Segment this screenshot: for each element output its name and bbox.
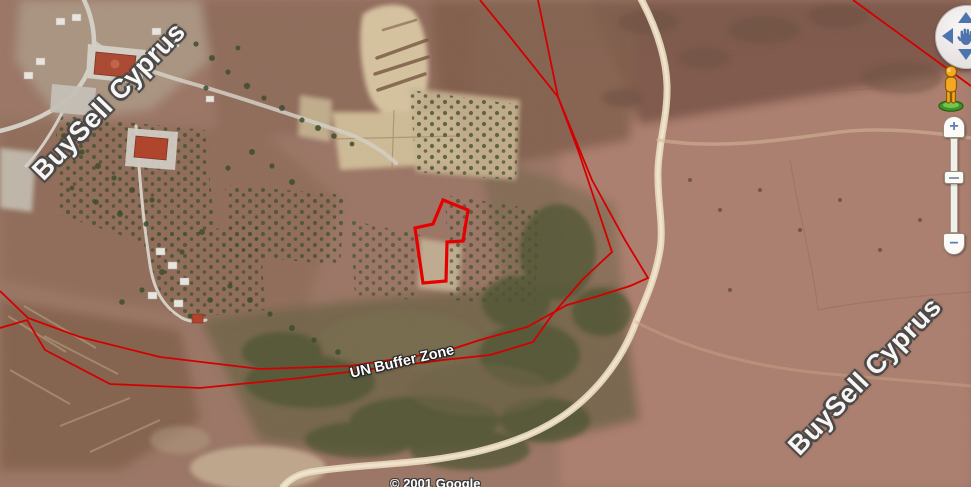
pan-control[interactable] [935,5,971,67]
chevron-down-icon[interactable] [958,49,971,60]
map-overlay-layer [0,0,971,487]
chevron-up-icon[interactable] [958,12,971,23]
map-viewport: BuySell Cyprus BuySell Cyprus UN Buffer … [0,0,971,487]
map-attribution: © 2001 Google [390,476,481,487]
property-boundary-polygon [415,200,468,283]
chevron-left-icon[interactable] [942,28,953,44]
un-buffer-zone-lines [0,0,971,388]
zoom-in-button[interactable]: + [943,116,965,138]
zoom-control: + − [943,116,965,256]
street-view-pegman-icon[interactable] [936,64,966,112]
zoom-out-button[interactable]: − [943,233,965,255]
zoom-slider-track[interactable] [950,138,958,233]
hand-icon[interactable] [956,25,971,47]
zoom-slider-handle[interactable] [944,171,964,184]
